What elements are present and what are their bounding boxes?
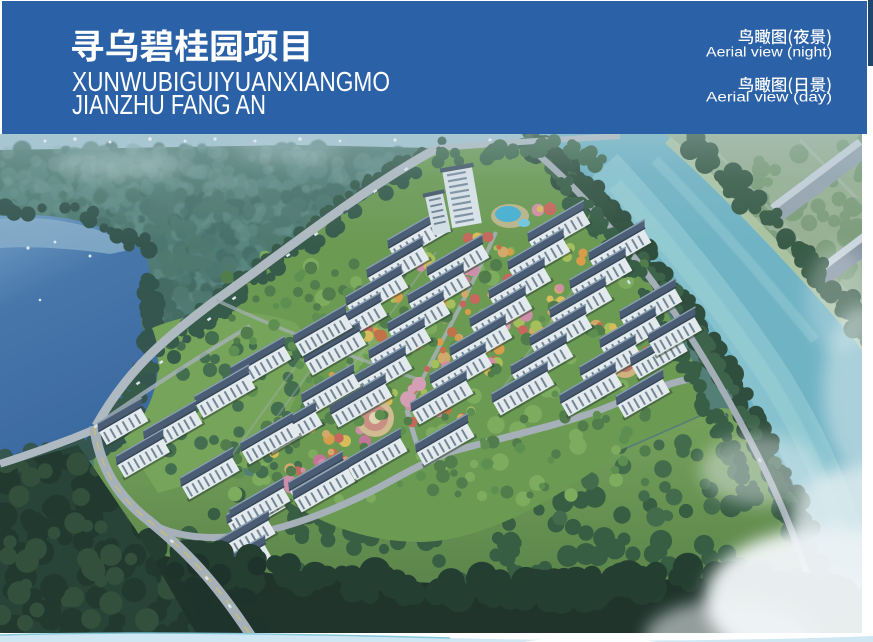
svg-text:JIANZHU FANG AN: JIANZHU FANG AN xyxy=(72,89,266,120)
svg-text:Aerial view (night): Aerial view (night) xyxy=(706,45,832,60)
svg-text:Aerial view (day): Aerial view (day) xyxy=(706,90,832,105)
